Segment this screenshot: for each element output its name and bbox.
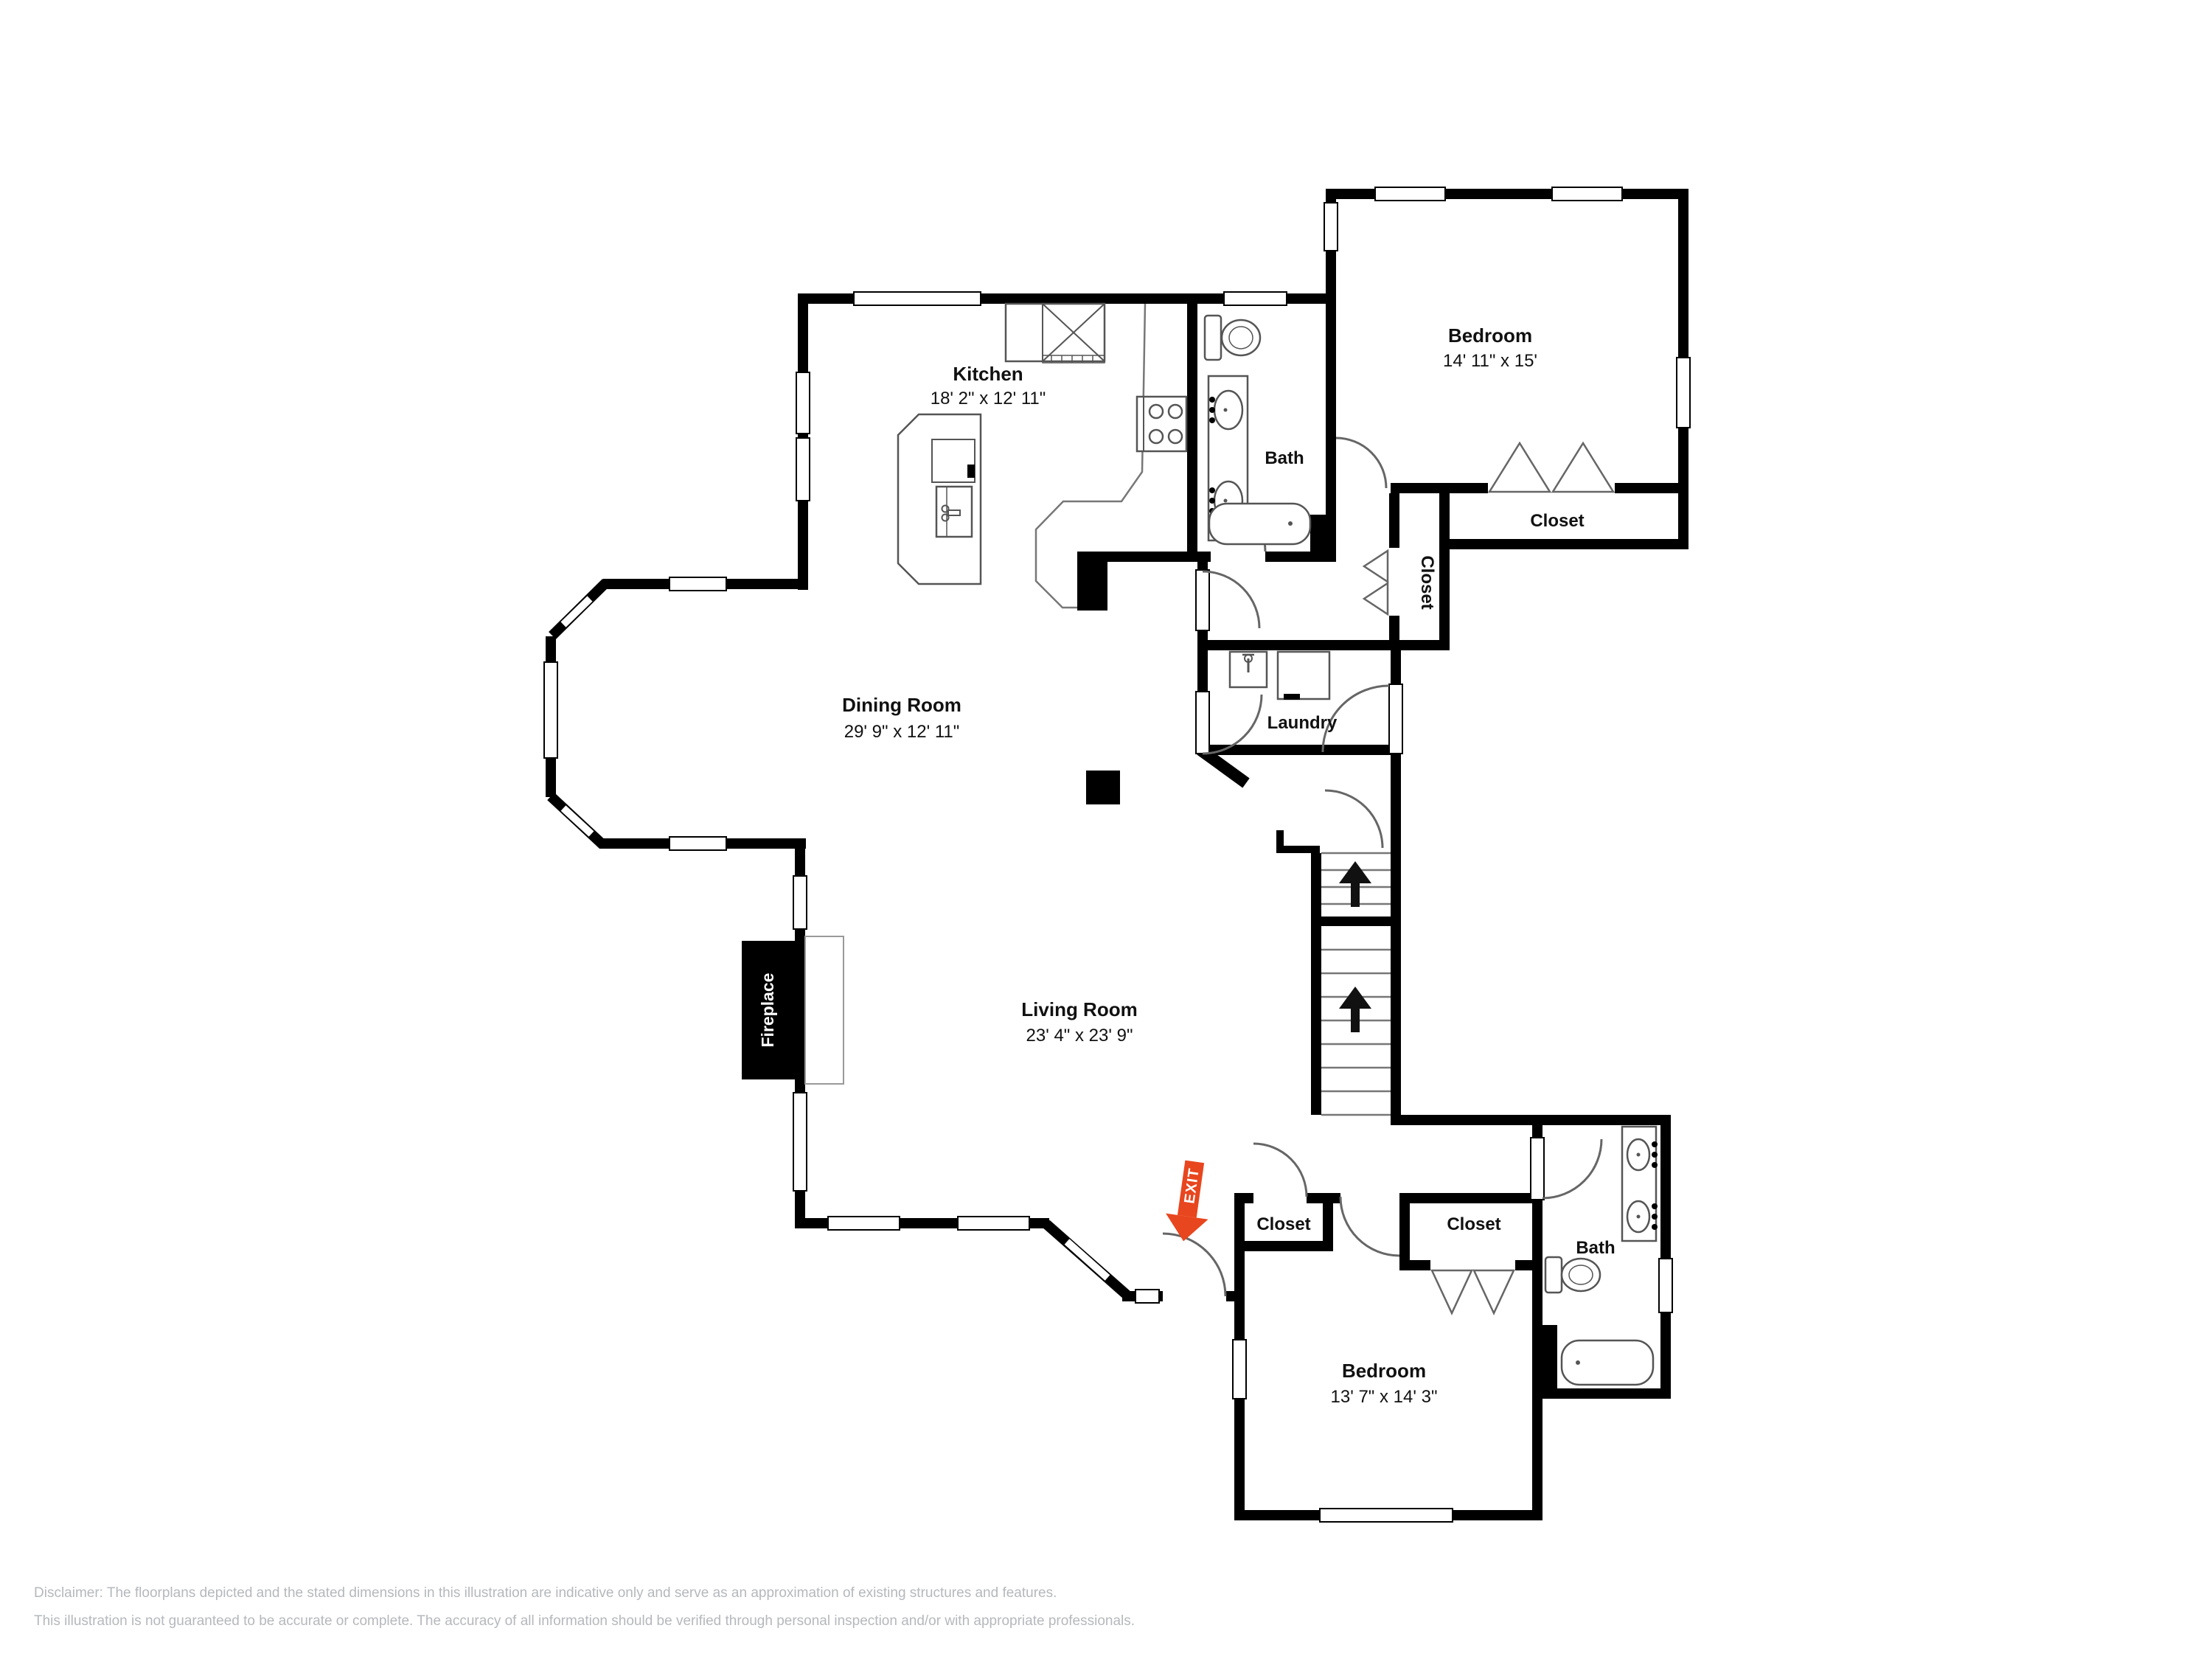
window xyxy=(1067,1242,1107,1278)
room-label-kitchen: Kitchen xyxy=(953,363,1023,385)
walls xyxy=(546,189,1688,1520)
exit-arrow: EXIT xyxy=(1162,1158,1216,1244)
bifold-door xyxy=(1432,1270,1472,1313)
door-swing xyxy=(1340,1197,1399,1256)
range-hood-icon xyxy=(1006,304,1105,363)
window xyxy=(669,577,726,591)
window xyxy=(1324,203,1338,251)
bath-upper-fixtures xyxy=(1205,316,1310,544)
door-leaf xyxy=(1389,684,1402,754)
window xyxy=(563,808,591,834)
toilet-icon xyxy=(1545,1257,1600,1293)
doors xyxy=(1163,438,1615,1313)
window xyxy=(793,1093,807,1191)
disclaimer: Disclaimer: The floorplans depicted and … xyxy=(34,1585,1135,1629)
laundry-fixtures xyxy=(1230,652,1329,700)
room-label-laundry: Laundry xyxy=(1267,713,1338,733)
window xyxy=(796,438,810,501)
kitchen-fixtures xyxy=(898,304,1186,608)
door-leaf xyxy=(1531,1138,1544,1200)
staircase xyxy=(1311,853,1391,1115)
disclaimer-line-1: Disclaimer: The floorplans depicted and … xyxy=(34,1585,1057,1601)
bifold-door xyxy=(1553,443,1613,492)
island-sink-icon xyxy=(936,487,972,537)
bifold-door xyxy=(1364,551,1388,582)
window xyxy=(544,662,557,758)
window xyxy=(1375,187,1445,201)
room-dims-dining: 29' 9" x 12' 11" xyxy=(844,722,960,742)
room-label-bath-upper: Bath xyxy=(1265,448,1304,468)
window xyxy=(1233,1340,1246,1399)
fireplace: Fireplace xyxy=(742,936,844,1084)
door-leaf xyxy=(1196,570,1209,630)
kitchen-island xyxy=(898,414,981,584)
window xyxy=(796,372,810,434)
hearth xyxy=(805,936,844,1084)
bifold-door xyxy=(1364,583,1388,614)
stairs-up-arrow xyxy=(1339,987,1371,1032)
room-label-dining: Dining Room xyxy=(842,694,961,716)
windows xyxy=(544,187,1690,1522)
door-swing xyxy=(1336,438,1386,488)
disclaimer-line-2: This illustration is not guaranteed to b… xyxy=(34,1613,1135,1629)
room-label-bedroom-lower: Bedroom xyxy=(1342,1360,1426,1382)
room-label-closet-lower-left: Closet xyxy=(1256,1214,1310,1234)
room-dims-kitchen: 18' 2" x 12' 11" xyxy=(931,389,1046,408)
window xyxy=(1677,358,1690,428)
window xyxy=(1135,1290,1159,1303)
room-dims-bedroom-upper: 14' 11" x 15' xyxy=(1443,351,1537,371)
door-swing xyxy=(1325,790,1382,848)
door-leaf xyxy=(1196,692,1209,754)
laundry-sink-icon xyxy=(1230,652,1267,687)
toilet-icon xyxy=(1205,316,1260,360)
window xyxy=(958,1217,1029,1230)
room-dims-bedroom-lower: 13' 7" x 14' 3" xyxy=(1331,1387,1438,1407)
window xyxy=(563,599,590,625)
window xyxy=(828,1217,900,1230)
room-label-living: Living Room xyxy=(1021,998,1137,1020)
window xyxy=(1659,1259,1672,1312)
window xyxy=(1320,1509,1453,1522)
door-swing xyxy=(1253,1144,1307,1197)
cooktop-icon xyxy=(1137,397,1186,451)
stairs-up-arrow xyxy=(1339,861,1371,907)
window xyxy=(854,292,981,305)
window xyxy=(669,837,726,850)
window xyxy=(1552,187,1622,201)
window xyxy=(1224,292,1287,305)
double-vanity-icon xyxy=(1622,1127,1658,1241)
bifold-door xyxy=(1474,1270,1514,1313)
bathtub-icon xyxy=(1209,504,1310,544)
floor-plan-svg: Fireplace EXIT Kitchen 18' 2" x 12' 11" … xyxy=(0,0,2212,1659)
room-label-closet-upper: Closet xyxy=(1530,511,1584,531)
room-label-bath-lower: Bath xyxy=(1576,1238,1615,1258)
fireplace-label: Fireplace xyxy=(758,973,777,1048)
door-swing xyxy=(1163,1234,1225,1296)
structural-post xyxy=(1086,771,1120,804)
door-swing xyxy=(1543,1139,1601,1198)
washer-icon xyxy=(1278,652,1329,700)
window xyxy=(793,876,807,929)
room-label-closet-hall: Closet xyxy=(1417,555,1437,609)
door-swing xyxy=(1203,571,1259,628)
room-label-bedroom-upper: Bedroom xyxy=(1448,324,1532,347)
floor-plan-page: Fireplace EXIT Kitchen 18' 2" x 12' 11" … xyxy=(0,0,2212,1659)
room-dims-living: 23' 4" x 23' 9" xyxy=(1026,1026,1133,1046)
bathtub-icon xyxy=(1562,1340,1653,1385)
room-label-closet-lower-right: Closet xyxy=(1447,1214,1500,1234)
bifold-door xyxy=(1489,443,1550,492)
